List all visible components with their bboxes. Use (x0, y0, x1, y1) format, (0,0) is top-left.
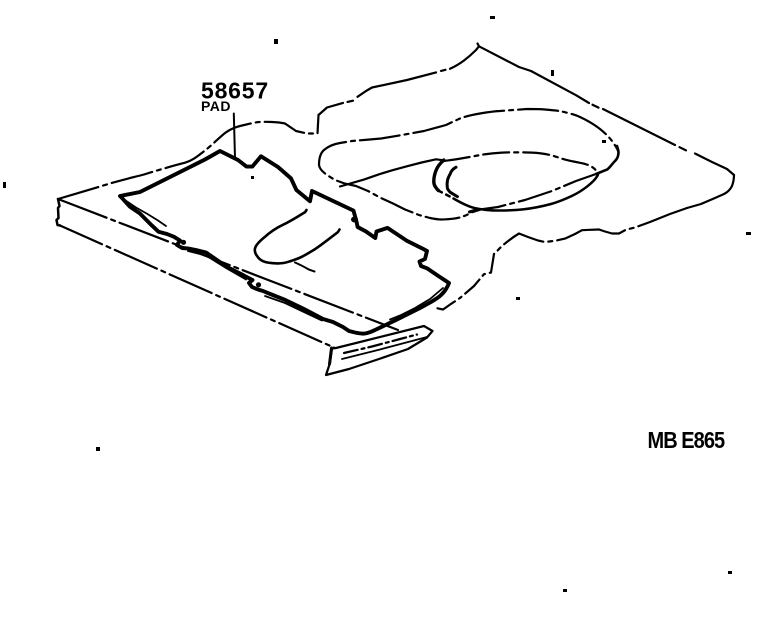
svg-text:PAD: PAD (201, 98, 231, 114)
svg-text:MB E865: MB E865 (648, 427, 726, 454)
